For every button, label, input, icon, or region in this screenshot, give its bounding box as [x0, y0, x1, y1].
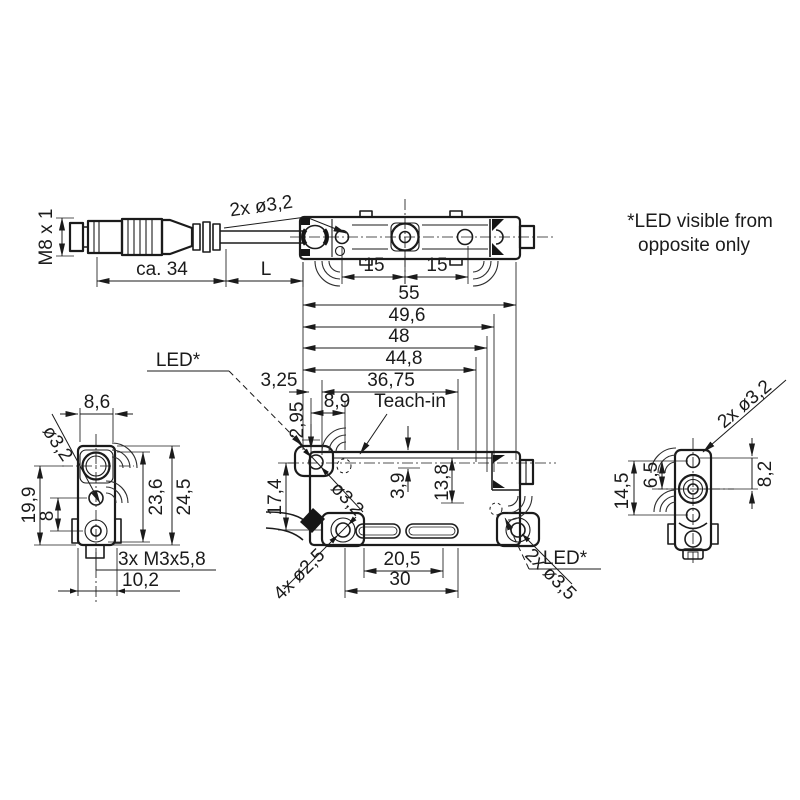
dim-8-2-label: 8,2 [755, 461, 776, 487]
led-top-callout: LED* [147, 350, 303, 446]
dim-48: 48 [303, 326, 487, 348]
dim-24-5-label: 24,5 [174, 479, 195, 516]
dim-3-25: 3,25 [261, 370, 309, 392]
teach-button-hidden [337, 459, 351, 473]
dim-49-6: 49,6 [303, 305, 494, 327]
dim-30-label: 30 [389, 569, 410, 590]
holes-end-label: 2x ø3,2 [714, 376, 776, 433]
lens-hole-label: ø3,2 [38, 422, 77, 465]
m8-connector [70, 219, 304, 255]
dim-17-4-label: 17,4 [265, 478, 286, 515]
dim-6-5-label: 6,5 [641, 462, 662, 488]
thread-label: M8 x 1 [36, 208, 57, 265]
dim-44-8-label: 44,8 [386, 348, 423, 369]
dim-8-9: 8,9 [311, 391, 350, 413]
dim-10-2-label: 10,2 [122, 570, 159, 591]
callout-holes-top: 2x ø3,2 [224, 192, 346, 233]
dim-44-8: 44,8 [303, 348, 476, 370]
teach-button-top [336, 247, 345, 256]
dim-23-6: 23,6 [108, 452, 167, 542]
callout-holes-end: 2x ø3,2 [703, 376, 786, 452]
pitch-label-2: 15 [426, 255, 447, 276]
teach-in-callout: Teach-in [360, 391, 446, 454]
callout-lens-hole: ø3,2 [38, 414, 100, 503]
dim-8-9-label: 8,9 [324, 391, 350, 412]
dim-3-25-label: 3,25 [261, 370, 298, 391]
dimension-stack: 55 49,6 48 44,8 36,75 3,25 8,9 Teach-in [261, 262, 516, 472]
connector-length-label: ca. 34 [136, 259, 188, 280]
mount-thread-note: 3x M3x5,8 [96, 549, 216, 570]
dim-13-8-label: 13,8 [432, 464, 453, 501]
dim-3-9-label: 3,9 [388, 473, 409, 499]
dim-14-5-label: 14,5 [612, 473, 633, 510]
dim-36-75-label: 36,75 [367, 370, 415, 391]
end-view: 2x ø3,2 14,5 6,5 8,2 [612, 376, 786, 566]
dim-8-label: 8 [37, 511, 58, 522]
foot [86, 545, 104, 558]
led-note-line2: opposite only [638, 235, 750, 256]
dim-2-95: 2,95 [287, 402, 320, 449]
dim-49-6-label: 49,6 [389, 305, 426, 326]
dim-20-5-label: 20,5 [384, 549, 421, 570]
dim-m8-thread: M8 x 1 [36, 208, 74, 265]
dim-48-label: 48 [388, 326, 409, 347]
front-view: 8,6 ø3,2 19,9 8 23,6 [19, 392, 216, 602]
cable-length-label: L [261, 259, 272, 280]
dim-36-75: 36,75 [322, 370, 458, 392]
mount-thread-label: 3x M3x5,8 [118, 549, 206, 570]
teach-in-label: Teach-in [374, 391, 446, 412]
slot [356, 524, 400, 538]
foot-holes-label: 4x ø2,5 [270, 545, 330, 605]
dim-2-95-label: 2,95 [287, 402, 308, 439]
led-top-label: LED* [156, 350, 201, 371]
dim-8: 8 [37, 498, 87, 531]
led-bottom-label: LED* [543, 548, 588, 569]
slot [406, 524, 458, 538]
dimension-drawing: *LED visible from opposite only M8 x 1 [0, 0, 800, 800]
holes-top-label: 2x ø3,2 [228, 192, 294, 222]
dim-23-6-label: 23,6 [146, 479, 167, 516]
dim-8-6-label: 8,6 [84, 392, 110, 413]
dim-55-label: 55 [398, 283, 419, 304]
pitch-label-1: 15 [363, 255, 384, 276]
led-note-line1: *LED visible from [627, 211, 773, 232]
dim-8-6: 8,6 [60, 392, 133, 442]
led-note: *LED visible from opposite only [627, 211, 773, 256]
dim-55: 55 [303, 283, 516, 305]
dim-13-8: 13,8 [432, 458, 464, 503]
dim-3-9: 3,9 [388, 426, 420, 499]
dim-19-9: 19,9 [19, 466, 76, 545]
dim-6-5: 6,5 [641, 461, 688, 489]
